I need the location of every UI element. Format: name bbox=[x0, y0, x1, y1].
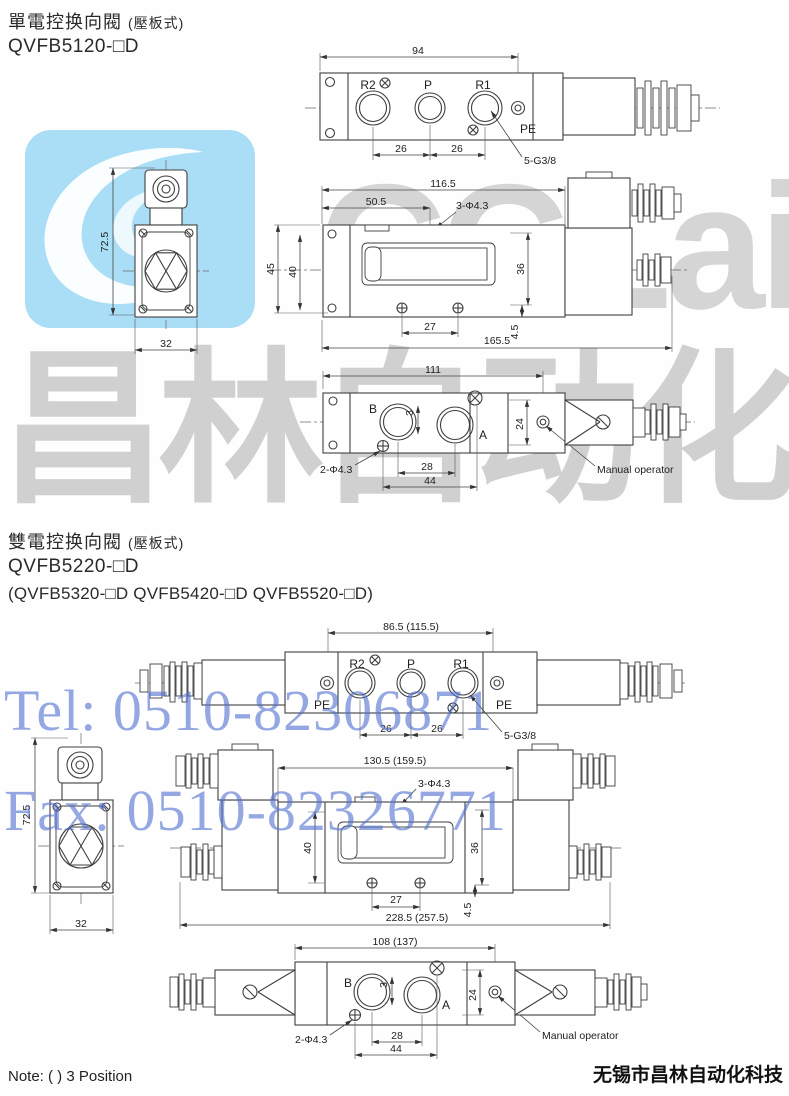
svg-text:4.5: 4.5 bbox=[509, 325, 521, 340]
svg-text:5-G3/8: 5-G3/8 bbox=[504, 730, 536, 742]
svg-text:32: 32 bbox=[75, 918, 87, 930]
footer-note: Note: ( ) 3 Position bbox=[8, 1068, 132, 1085]
svg-text:28: 28 bbox=[421, 461, 433, 473]
svg-text:26: 26 bbox=[431, 723, 443, 735]
section1-title: 單電控换向閥 (壓板式) bbox=[8, 8, 184, 34]
svg-text:3: 3 bbox=[404, 410, 416, 416]
svg-text:26: 26 bbox=[395, 143, 407, 155]
s2-side-view-drawing: 130.5 (159.5) 3-Φ4.3 40 36 27 4.5 228.5 … bbox=[170, 742, 789, 938]
svg-text:26: 26 bbox=[380, 723, 392, 735]
svg-text:36: 36 bbox=[469, 842, 481, 854]
svg-text:40: 40 bbox=[287, 266, 299, 278]
section2-title-paren: (壓板式) bbox=[128, 535, 184, 551]
svg-text:36: 36 bbox=[515, 263, 527, 275]
svg-text:40: 40 bbox=[302, 842, 314, 854]
svg-text:PE: PE bbox=[496, 698, 512, 712]
svg-text:A: A bbox=[442, 998, 450, 1012]
s1-front-view-drawing: 72.5 32 bbox=[95, 155, 250, 365]
svg-text:130.5 (159.5): 130.5 (159.5) bbox=[364, 755, 426, 767]
svg-text:3-Φ4.3: 3-Φ4.3 bbox=[418, 778, 450, 790]
svg-text:B: B bbox=[369, 402, 377, 416]
svg-text:Manual operator: Manual operator bbox=[542, 1030, 619, 1042]
s2-top-view-drawing: 86.5 (115.5) R2 P R1 PE PE 26 26 bbox=[130, 618, 789, 755]
svg-text:R1: R1 bbox=[475, 78, 491, 92]
svg-text:32: 32 bbox=[160, 338, 172, 350]
datasheet-page: CCLair 昌林自动化 單電控换向閥 (壓板式) QVFB5120-□D 94… bbox=[0, 0, 789, 1096]
svg-text:94: 94 bbox=[412, 45, 424, 57]
svg-text:24: 24 bbox=[467, 989, 479, 1001]
section1-model: QVFB5120-□D bbox=[8, 36, 139, 58]
svg-text:4.5: 4.5 bbox=[462, 903, 474, 918]
svg-text:3: 3 bbox=[378, 982, 390, 988]
svg-text:2-Φ4.3: 2-Φ4.3 bbox=[320, 464, 352, 476]
s1-top-view-drawing: 94 R2 P R1 PE 26 26 5-G3/8 bbox=[300, 45, 775, 185]
svg-text:A: A bbox=[479, 428, 487, 442]
svg-text:2-Φ4.3: 2-Φ4.3 bbox=[295, 1034, 327, 1046]
svg-text:72.5: 72.5 bbox=[21, 805, 33, 826]
section2-model: QVFB5220-□D bbox=[8, 556, 139, 578]
svg-text:50.5: 50.5 bbox=[366, 196, 387, 208]
svg-text:165.5: 165.5 bbox=[484, 335, 510, 347]
svg-text:3-Φ4.3: 3-Φ4.3 bbox=[456, 200, 488, 212]
svg-text:44: 44 bbox=[390, 1043, 402, 1055]
svg-text:R1: R1 bbox=[453, 657, 469, 671]
s1-side-view-drawing: 116.5 50.5 3-Φ4.3 45 40 36 27 4.5 bbox=[270, 172, 785, 367]
svg-text:R2: R2 bbox=[360, 78, 376, 92]
svg-text:28: 28 bbox=[391, 1030, 403, 1042]
svg-text:PE: PE bbox=[314, 698, 330, 712]
section2-alt-models: (QVFB5320-□D QVFB5420-□D QVFB5520-□D) bbox=[8, 584, 373, 604]
svg-text:5-G3/8: 5-G3/8 bbox=[524, 155, 556, 167]
svg-text:72.5: 72.5 bbox=[99, 232, 111, 253]
section2-title-text: 雙電控换向閥 bbox=[8, 532, 122, 552]
svg-text:P: P bbox=[407, 657, 415, 671]
section1-title-text: 單電控换向閥 bbox=[8, 12, 122, 32]
section1-title-paren: (壓板式) bbox=[128, 15, 184, 31]
svg-text:Manual operator: Manual operator bbox=[597, 464, 674, 476]
s1-bottom-view-drawing: 111 B A 3 24 Manual operator 2-Φ4.3 2 bbox=[295, 362, 785, 512]
svg-text:26: 26 bbox=[451, 143, 463, 155]
svg-text:111: 111 bbox=[425, 364, 441, 376]
svg-text:116.5: 116.5 bbox=[430, 178, 456, 190]
svg-text:P: P bbox=[424, 78, 432, 92]
svg-text:228.5 (257.5): 228.5 (257.5) bbox=[386, 912, 448, 924]
svg-text:R2: R2 bbox=[349, 657, 365, 671]
footer-company: 无锡市昌林自动化科技 bbox=[593, 1060, 783, 1087]
svg-text:B: B bbox=[344, 976, 352, 990]
svg-text:24: 24 bbox=[514, 418, 526, 430]
svg-text:PE: PE bbox=[520, 122, 536, 136]
svg-text:108 (137): 108 (137) bbox=[373, 936, 418, 948]
s2-front-view-drawing: 72.5 32 bbox=[20, 725, 170, 940]
svg-text:27: 27 bbox=[424, 321, 436, 333]
section2-title: 雙電控换向閥 (壓板式) bbox=[8, 528, 184, 554]
svg-text:86.5 (115.5): 86.5 (115.5) bbox=[383, 621, 439, 633]
svg-text:44: 44 bbox=[424, 475, 436, 487]
svg-text:45: 45 bbox=[265, 263, 277, 275]
svg-text:27: 27 bbox=[390, 894, 402, 906]
